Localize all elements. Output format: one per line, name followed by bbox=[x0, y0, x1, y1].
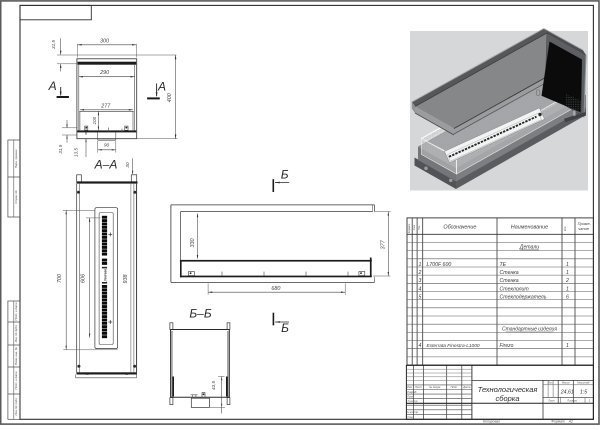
svg-text:938: 938 bbox=[123, 275, 129, 284]
svg-text:Стенка: Стенка bbox=[500, 270, 519, 276]
svg-text:Формат: Формат bbox=[408, 224, 411, 234]
svg-text:А2: А2 bbox=[568, 419, 573, 423]
svg-text:Утв.: Утв. bbox=[407, 415, 413, 419]
svg-text:1: 1 bbox=[566, 286, 569, 292]
svg-text:Б–Б: Б–Б bbox=[189, 307, 211, 321]
svg-text:Пров.: Пров. bbox=[407, 395, 414, 399]
svg-text:4: 4 bbox=[418, 343, 421, 349]
svg-text:Б: Б bbox=[281, 321, 289, 335]
svg-text:А–А: А–А bbox=[94, 158, 118, 172]
svg-text:ТЕ: ТЕ bbox=[500, 262, 507, 268]
svg-text:Кол.: Кол. bbox=[563, 226, 567, 231]
svg-text:13,5: 13,5 bbox=[74, 148, 79, 157]
svg-text:700: 700 bbox=[57, 274, 63, 283]
svg-text:43,5: 43,5 bbox=[211, 381, 216, 390]
svg-text:Лит.: Лит. bbox=[546, 381, 553, 385]
svg-text:3: 3 bbox=[418, 278, 421, 284]
svg-text:31,5: 31,5 bbox=[58, 144, 63, 153]
svg-text:277: 277 bbox=[100, 103, 111, 109]
svg-text:377: 377 bbox=[381, 239, 387, 249]
svg-text:Взам. инв. №: Взам. инв. № bbox=[14, 346, 18, 365]
svg-text:100: 100 bbox=[92, 116, 97, 124]
svg-text:5: 5 bbox=[418, 294, 421, 300]
svg-text:31,5: 31,5 bbox=[51, 40, 56, 49]
svg-text:4: 4 bbox=[418, 286, 421, 292]
svg-text:Масса: Масса bbox=[562, 381, 570, 385]
svg-text:1: 1 bbox=[566, 270, 569, 276]
svg-text:L700F 600: L700F 600 bbox=[427, 262, 452, 268]
svg-text:400: 400 bbox=[167, 93, 173, 102]
svg-text:2: 2 bbox=[417, 270, 421, 276]
svg-text:Стеклодержатель: Стеклодержатель bbox=[500, 294, 547, 300]
svg-text:Подп. и дата: Подп. и дата bbox=[14, 371, 18, 389]
svg-text:А: А bbox=[157, 79, 166, 93]
svg-text:чание: чание bbox=[578, 226, 589, 231]
svg-text:Справ. №: Справ. № bbox=[14, 190, 18, 204]
svg-text:Изм.: Изм. bbox=[407, 385, 413, 389]
svg-text:Обозначение: Обозначение bbox=[443, 224, 476, 230]
svg-text:Масштаб: Масштаб bbox=[577, 381, 590, 385]
svg-text:Т.контр.: Т.контр. bbox=[407, 399, 418, 403]
svg-text:№ докум.: № докум. bbox=[429, 385, 441, 389]
svg-text:290: 290 bbox=[99, 70, 109, 76]
svg-text:Стеклолит: Стеклолит bbox=[500, 286, 530, 292]
svg-text:680: 680 bbox=[271, 286, 280, 292]
svg-text:606: 606 bbox=[80, 274, 86, 283]
svg-text:1: 1 bbox=[566, 343, 569, 349]
svg-text:Инв. № подл.: Инв. № подл. bbox=[14, 397, 18, 415]
svg-text:Стандартные изделия: Стандартные изделия bbox=[502, 327, 557, 333]
svg-text:Формат: Формат bbox=[551, 419, 565, 423]
svg-text:Б: Б bbox=[281, 168, 289, 182]
svg-text:А: А bbox=[48, 79, 57, 93]
svg-text:Разраб.: Разраб. bbox=[407, 390, 417, 394]
svg-text:Лист: Лист bbox=[414, 385, 423, 389]
svg-text:Технологическая: Технологическая bbox=[478, 385, 538, 394]
svg-text:Подп.: Подп. bbox=[451, 385, 458, 389]
svg-text:сборка: сборка bbox=[495, 394, 519, 403]
svg-text:Стенка: Стенка bbox=[500, 278, 519, 284]
svg-text:Листов: Листов bbox=[566, 398, 577, 402]
svg-text:1:5: 1:5 bbox=[580, 390, 587, 396]
svg-text:2: 2 bbox=[565, 278, 569, 284]
svg-text:Лист: Лист bbox=[547, 398, 556, 402]
svg-text:Зона: Зона bbox=[413, 224, 416, 230]
svg-text:6: 6 bbox=[566, 294, 569, 300]
svg-text:Поз.: Поз. bbox=[418, 225, 421, 230]
svg-text:1: 1 bbox=[566, 262, 569, 268]
svg-text:Копировал: Копировал bbox=[483, 419, 500, 423]
svg-text:90: 90 bbox=[104, 143, 110, 149]
svg-text:Наименование: Наименование bbox=[511, 224, 548, 230]
svg-text:Подп. и дата: Подп. и дата bbox=[14, 302, 18, 320]
svg-text:24,61: 24,61 bbox=[560, 390, 574, 396]
svg-text:Перв. примен.: Перв. примен. bbox=[14, 149, 18, 168]
svg-text:30: 30 bbox=[125, 162, 130, 168]
svg-text:Firezo: Firezo bbox=[500, 343, 514, 349]
svg-text:300: 300 bbox=[100, 38, 109, 44]
svg-text:1: 1 bbox=[418, 262, 421, 268]
svg-text:Н.контр.: Н.контр. bbox=[407, 410, 419, 414]
svg-text:Инв. № дубл.: Инв. № дубл. bbox=[14, 324, 18, 342]
svg-text:330: 330 bbox=[190, 239, 196, 248]
svg-text:L700F600: L700F600 bbox=[103, 269, 107, 283]
svg-text:Esterrata Finestra-L1000: Esterrata Finestra-L1000 bbox=[427, 343, 480, 349]
svg-text:Дата: Дата bbox=[462, 385, 471, 389]
